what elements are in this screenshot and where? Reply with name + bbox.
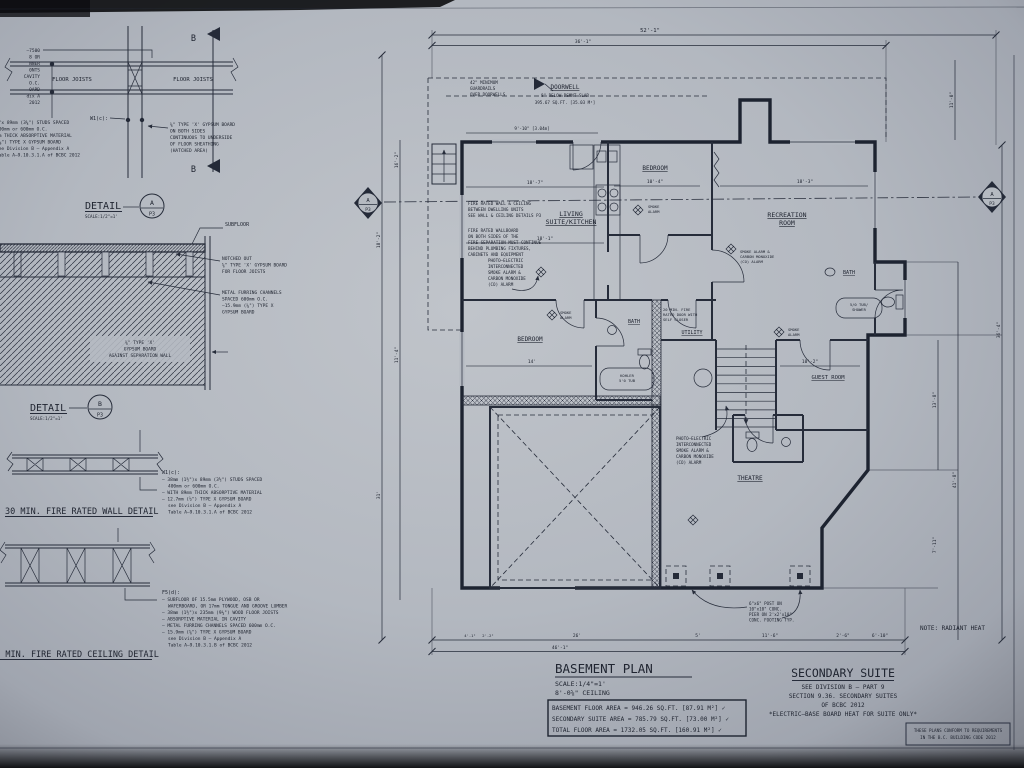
detail-bubble-sheet: P3 (97, 413, 103, 419)
dim: 46'-1" (552, 645, 568, 651)
guardrail-note: 42" MINIMUM (470, 80, 498, 85)
room-recreation: RECREATION (767, 211, 806, 219)
doorwell-note: 8" BELOW BSMNT SLAB (541, 93, 589, 98)
detail-a-left-note: ⅝"x 89mm (3⅝") STUDS SPACED 400mm or 600… (0, 119, 80, 159)
radiant-heat-note: NOTE: RADIANT HEAT (920, 625, 985, 632)
secondary-suite-title: SECONDARY SUITE (791, 666, 895, 680)
secondary-line: *ELECTRIC–BASE BOARD HEAT FOR SUITE ONLY… (769, 711, 917, 718)
hatch-label-line: GYPSUM BOARD (124, 347, 157, 353)
note-fragment: O.C. (29, 81, 40, 87)
detail-a-title: DETAIL (85, 201, 121, 212)
smoke-alarm-label: ALARM (788, 332, 800, 337)
detail-a-scale: SCALE:1/2"=1' (85, 214, 118, 219)
hatch-label-line: AGAINST SEPARATION WALL (109, 353, 172, 359)
floor-joists-label: FLOOR JOISTS (173, 77, 213, 83)
section-marker-b-top: B (191, 34, 196, 44)
dim: 9'-10" [3.04m] (514, 126, 549, 131)
dim: 11'-6" (762, 633, 778, 639)
dim: 18'-3" (797, 179, 813, 185)
tub-label: SHOWER (852, 307, 866, 312)
dim: 18'-2" (376, 232, 382, 248)
w1c-tag: W1(c): (90, 116, 108, 122)
note-line: SPACED 600mm O.C. (222, 297, 268, 303)
smoke-note: CARBON MONOXIDE (488, 276, 526, 281)
smoke-note: SMOKE ALARM & (488, 270, 521, 275)
note-line: – METAL FURRING CHANNELS SPACED 600mm O.… (162, 623, 276, 629)
note-line: (HATCHED AREA) (170, 148, 208, 154)
dim: 10'-4" (647, 179, 663, 185)
smoke-note: INTERCONNECTED (488, 264, 524, 269)
note-line: see Division B – Appendix A (0, 146, 69, 152)
ceiling-detail-title: 30 MIN. FIRE RATED CEILING DETAIL (0, 650, 159, 660)
smoke-alarm-label: ALARM (560, 315, 572, 320)
dim: 18'-7" (527, 180, 543, 186)
basement-plan-title: BASEMENT PLAN (555, 661, 653, 676)
detail-b-title: DETAIL (30, 403, 66, 414)
room-bedroom-lower: BEDROOM (517, 336, 543, 343)
blueprint-photo: —7500 8 OR NNER 0NTS CAVITY O.C. OARD di… (0, 0, 1024, 768)
dim: 10'-2" (802, 359, 818, 365)
smoke-note: PHOTO–ELECTRIC (676, 436, 712, 441)
fire-note: FIRE RATED WALLBOARD (468, 228, 519, 233)
note-line: (⅝") TYPE X GYPSUM BOARD (0, 139, 61, 146)
post-note: PIER ON 2'x2'x10" (749, 612, 792, 617)
room-living: SUITE/KITCHEN (546, 218, 597, 226)
smoke-note: (CO) ALARM (676, 460, 702, 465)
tub-label: 5'0 TUB (619, 378, 636, 383)
post-note: CONC. FOOTING TYP. (749, 618, 794, 623)
dim: 41'-8" (952, 472, 958, 488)
note-line: ⅝" TYPE 'X' GYPSUM BOARD (222, 262, 287, 269)
dim: 4'-1" (464, 633, 475, 638)
detail-b-scale: SCALE:1/2"=1' (30, 416, 63, 421)
area-line: BASEMENT FLOOR AREA = 946.26 SQ.FT. [87.… (552, 705, 726, 712)
note-line: ⅝"x 89mm (3⅝") STUDS SPACED (0, 119, 69, 126)
dim: 2'-6" (836, 633, 850, 639)
note-line: – SUBFLOOR OF 15.5mm PLYWOOD, OSB OR (162, 597, 260, 603)
f5d-tag: F5(d): (162, 590, 180, 596)
guardrail-note: GUARDRAILS (470, 86, 496, 91)
room-living: LIVING (559, 210, 583, 218)
note-line: – ABSORPTIVE MATERIAL IN CAVITY (162, 617, 246, 623)
doorwell-area: 395.67 SQ.FT. [35.03 M²] (535, 100, 596, 105)
stamp-line: THESE PLANS CONFORM TO REQUIREMENTS (914, 728, 1003, 733)
marker-sheet: P3 (989, 201, 995, 207)
post-note: 6"x6" POST ON (749, 601, 782, 606)
dim: 11'-4" (394, 347, 400, 363)
note-fragment: 2012 (29, 100, 40, 106)
dim: 36'-1" (575, 39, 591, 45)
note-fragment: —7500 (26, 48, 40, 54)
smoke-alarm-label: ALARM (648, 209, 660, 214)
note-line: GYPSUM BOARD (222, 310, 255, 316)
note-line: – WITH 89mm THICK ABSORPTIVE MATERIAL (162, 490, 263, 496)
secondary-line: OF BCBC 2012 (821, 702, 865, 709)
post-note: 10"x10" CONC. (749, 607, 782, 612)
detail-bubble-letter: B (98, 400, 102, 408)
note-line: OF FLOOR SHEATHING (170, 142, 219, 148)
hatch-label-line: ⅝" TYPE 'X' (125, 339, 155, 346)
note-line: Table A–9.10.3.1.A of BCBC 2012 (168, 510, 252, 516)
fire-note: FIRE SEPARATION MUST CONTINUE (468, 240, 542, 245)
room-bath-mid: BATH (628, 319, 640, 325)
note-line: see Division B – Appendix A (168, 636, 241, 642)
dim: 26' (573, 633, 581, 639)
dim: 2'-2" (482, 633, 493, 638)
dim: 5' (695, 633, 700, 639)
note-line: – 38mm (1½")x 89mm (3½") STUDS SPACED (162, 476, 263, 483)
dim: 11'-0" (949, 92, 955, 108)
basement-plan-sheet: —7500 8 OR NNER 0NTS CAVITY O.C. OARD di… (0, 0, 1024, 768)
fire-door-note: SELF CLOSER (663, 317, 689, 322)
dim: 16'-2" (394, 152, 400, 168)
wall-detail-title: 30 MIN. FIRE RATED WALL DETAIL (5, 507, 159, 517)
area-line: SECONDARY SUITE AREA = 785.79 SQ.FT. [73… (552, 716, 729, 723)
note-fragment: 0NTS (29, 68, 40, 74)
secondary-line: SEE DIVISION B — PART 9 (801, 684, 884, 691)
smoke-note: CARBON MONOXIDE (676, 454, 714, 459)
floor-joists-label: FLOOR JOISTS (52, 77, 92, 83)
note-line: ⅝" TYPE 'X' GYPSUM BOARD (170, 121, 235, 128)
smoke-note: (CO) ALARM (488, 282, 514, 287)
note-line: – 15.9mm (⅝") TYPE X GYPSUM BOARD (162, 629, 252, 636)
detail-bubble-letter: A (150, 199, 154, 207)
fire-note: BETWEEN DWELLING UNITS (468, 207, 524, 212)
smoke-co-note: (CO) ALARM (740, 259, 764, 264)
note-line: METAL FURRING CHANNELS (222, 290, 282, 296)
subfloor-label: SUBFLOOR (225, 222, 250, 228)
doorwell-label: DOORWELL (551, 84, 580, 91)
note-line: Table A–9.10.3.1.A of BCBC 2012 (0, 153, 80, 159)
section-marker-b-bottom: B (191, 165, 196, 175)
note-line: – 12.7mm (½") TYPE X GYPSUM BOARD (162, 496, 252, 503)
smoke-note: SMOKE ALARM & (676, 448, 709, 453)
fire-note: BEHIND PLUMBING FIXTURES, (468, 246, 531, 251)
guardrail-note: OVER DOORWELLS (470, 92, 506, 97)
room-recreation: ROOM (779, 219, 795, 227)
stamp-line: IN THE B.C. BUILDING CODE 2012 (920, 735, 996, 740)
dim: 36'-4" (996, 322, 1002, 338)
room-bedroom-upper: BEDROOM (642, 165, 668, 172)
note-line: Table A–9.10.3.1.B of BCBC 2012 (168, 643, 252, 649)
w1c-tag: W1(c): (162, 470, 180, 476)
dim: 13'-8" (932, 392, 938, 408)
dim: 7'-11" (932, 537, 938, 553)
room-bath-right: BATH (843, 270, 855, 276)
note-line: CONTINUOUS TO UNDERSIDE (170, 135, 233, 141)
note-line: NOTCHED OUT (222, 256, 252, 262)
plan-ceiling: 8'-0⅝" CEILING (555, 689, 610, 697)
note-fragment: 8 OR (29, 55, 40, 61)
secondary-line: SECTION 9.36. SECONDARY SUITES (789, 693, 898, 700)
note-line: –15.9mm (⅝") TYPE X (222, 302, 274, 309)
dim: 52'-1" (640, 28, 660, 34)
smoke-note: INTERCONNECTED (676, 442, 712, 447)
fire-note: ON BOTH SIDES OF THE (468, 234, 519, 239)
smoke-note: PHOTO–ELECTRIC (488, 258, 524, 263)
dim: 6'-10" (872, 633, 888, 639)
note-line: 400mm or 600mm O.C. (168, 484, 219, 490)
detail-bubble-sheet: P3 (149, 212, 155, 218)
room-guest: GUEST ROOM (811, 375, 845, 381)
dim: 31' (376, 491, 382, 499)
fire-note: CABINETS AND EQUIPMENT (468, 252, 524, 257)
note-line: see Division B – Appendix A (168, 503, 241, 509)
note-line: mm THICK ABSORPTIVE MATERIAL (0, 133, 72, 139)
note-line: WAFERBOARD, OR 17mm TONGUE AND GROOVE LU… (168, 604, 287, 610)
room-theatre: THEATRE (737, 475, 763, 482)
note-fragment: CAVITY (24, 74, 41, 80)
dim: 14' (528, 359, 536, 365)
note-line: 400mm or 600mm O.C. (0, 127, 47, 133)
plan-scale: SCALE:1/4"=1' (555, 680, 606, 688)
fire-note: SEE WALL & CEILING DETAILS P3 (468, 213, 542, 218)
fire-note: FIRE RATED WALL & CEILING (468, 201, 532, 206)
area-line: TOTAL FLOOR AREA = 1732.05 SQ.FT. [160.9… (552, 727, 722, 734)
marker-sheet: P3 (365, 207, 371, 213)
note-line: – 38mm (1½")x 235mm (9¼") WOOD FLOOR JOI… (162, 609, 279, 616)
note-line: FOR FLOOR JOISTS (222, 269, 266, 275)
room-utility: UTILITY (681, 330, 702, 336)
note-line: ON BOTH SIDES (170, 129, 206, 135)
